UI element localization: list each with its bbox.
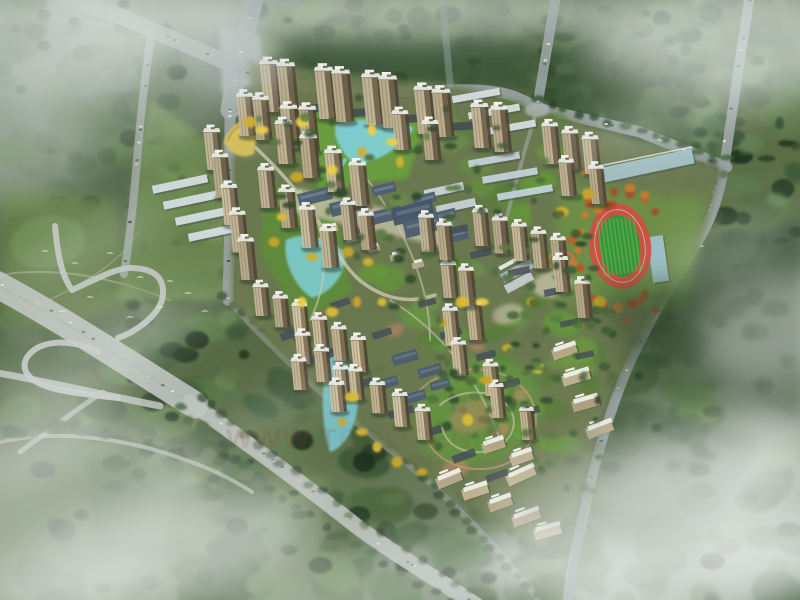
svg-text:WWW.TOOOPEN.COM: WWW.TOOOPEN.COM	[226, 423, 554, 454]
